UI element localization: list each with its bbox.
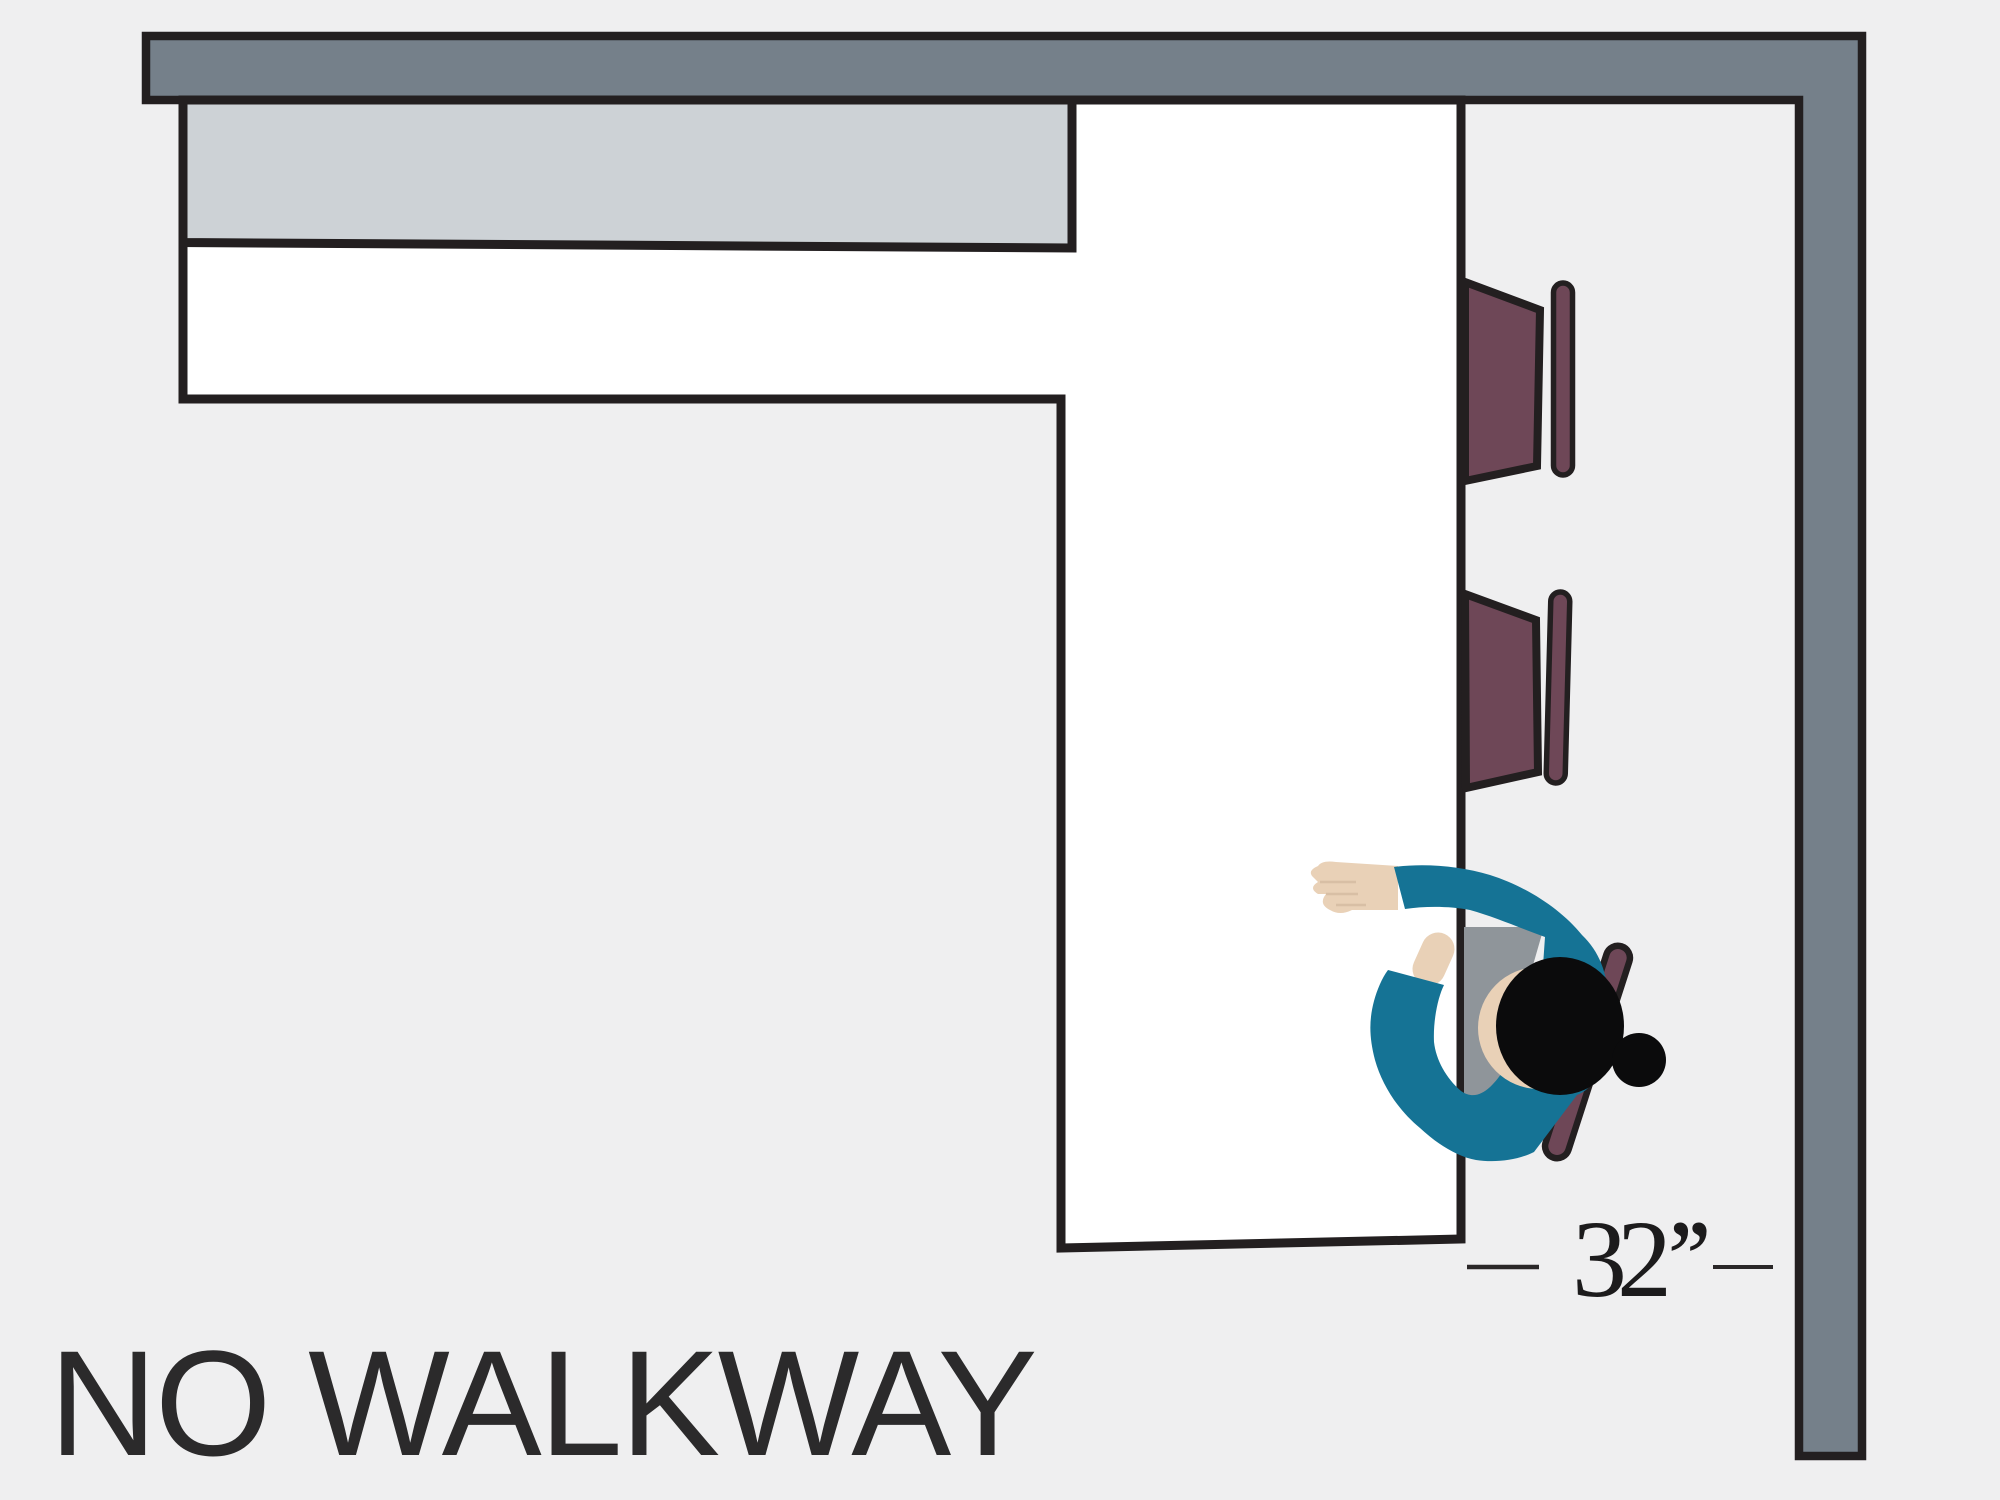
svg-text:32’’: 32’’ (1572, 1198, 1707, 1320)
svg-text:NO WALKWAY: NO WALKWAY (49, 1319, 1035, 1487)
